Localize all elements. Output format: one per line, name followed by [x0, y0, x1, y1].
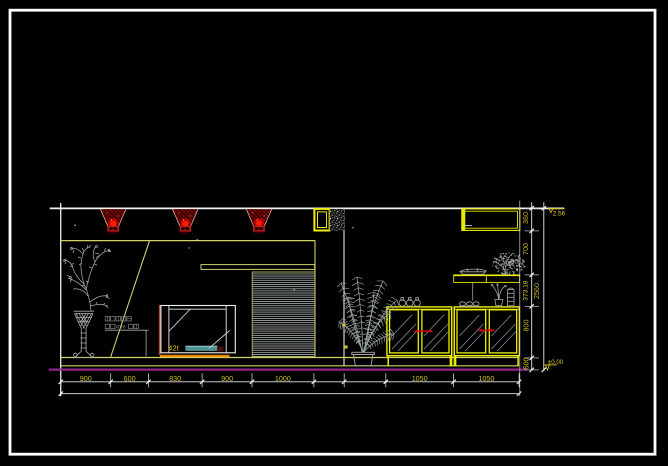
svg-text:42t: 42t	[168, 346, 179, 353]
svg-text:600: 600	[124, 374, 136, 383]
svg-text:500: 500	[524, 357, 531, 369]
svg-text:1000: 1000	[275, 374, 291, 383]
svg-text:mm: mm	[116, 325, 126, 331]
svg-text:800: 800	[521, 320, 530, 332]
svg-text:830: 830	[169, 374, 181, 383]
svg-text:700: 700	[521, 243, 530, 255]
svg-text:900: 900	[221, 374, 233, 383]
svg-text:360: 360	[521, 212, 530, 224]
svg-text:±0.00: ±0.00	[548, 359, 564, 366]
svg-text:2.56: 2.56	[553, 211, 566, 218]
svg-text:1050: 1050	[478, 374, 494, 383]
svg-text:2560: 2560	[532, 283, 541, 299]
svg-text:1050: 1050	[412, 374, 428, 383]
svg-text:373.18: 373.18	[523, 280, 530, 301]
svg-text:900: 900	[80, 374, 92, 383]
